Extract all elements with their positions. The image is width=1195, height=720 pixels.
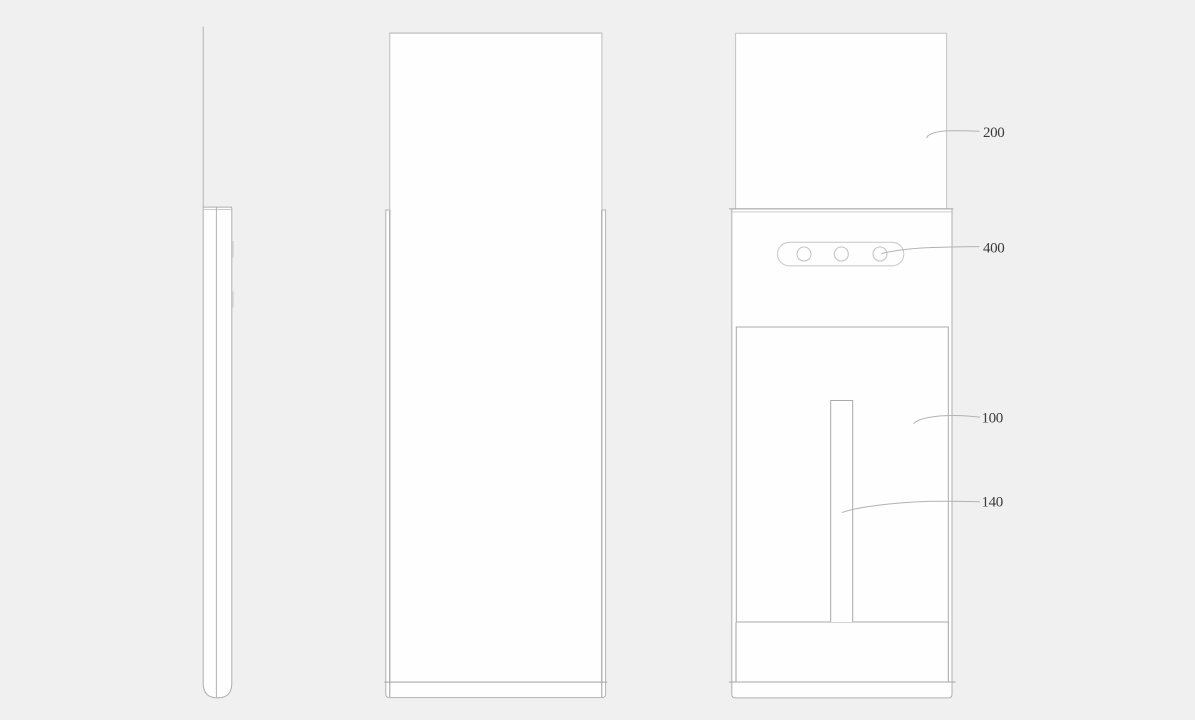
svg-text:400: 400 (983, 241, 1004, 257)
svg-text:200: 200 (983, 125, 1004, 141)
svg-text:100: 100 (982, 411, 1003, 427)
svg-text:140: 140 (982, 495, 1003, 511)
